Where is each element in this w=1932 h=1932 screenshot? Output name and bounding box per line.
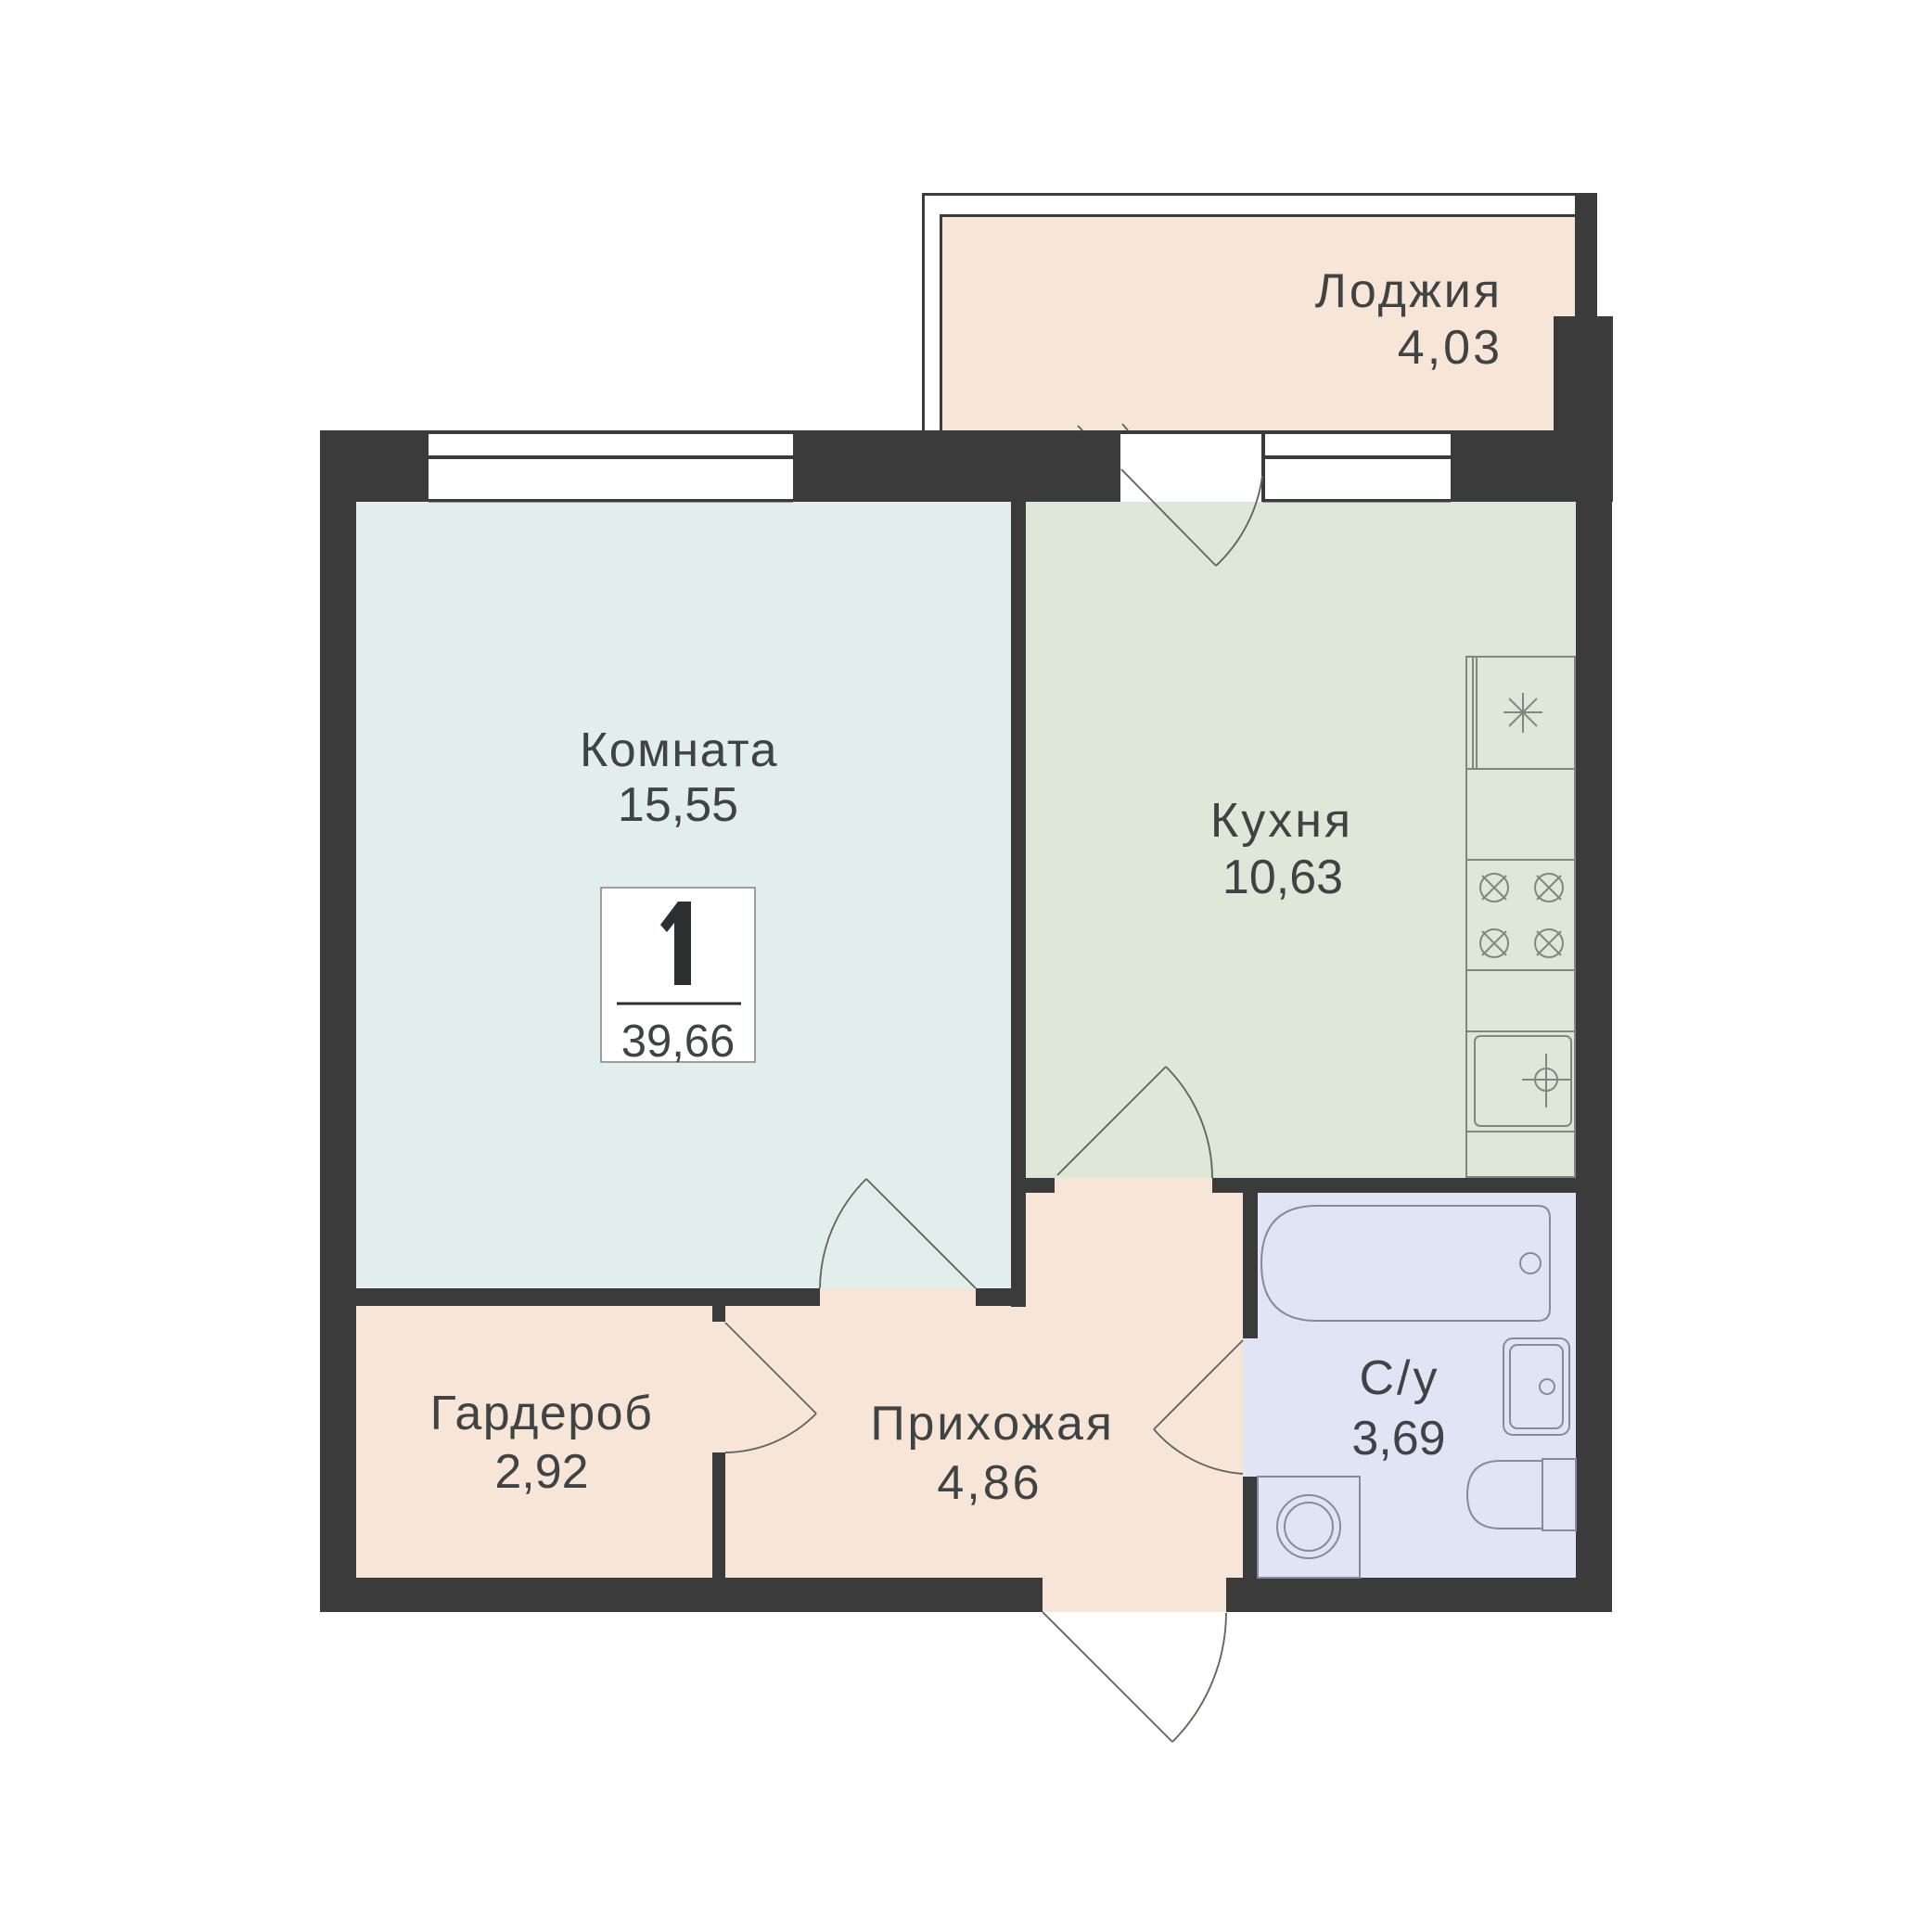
svg-text:3,69: 3,69 — [1351, 1412, 1445, 1465]
svg-text:15,55: 15,55 — [618, 778, 738, 832]
svg-text:39,66: 39,66 — [621, 1017, 736, 1067]
svg-text:4,03: 4,03 — [1398, 321, 1503, 375]
svg-text:Гардероб: Гардероб — [430, 1387, 654, 1440]
svg-text:4,86: 4,86 — [937, 1456, 1042, 1510]
svg-text:10,63: 10,63 — [1222, 851, 1343, 904]
svg-text:2,92: 2,92 — [494, 1445, 588, 1499]
svg-text:Комната: Комната — [580, 723, 778, 777]
svg-text:Прихожая: Прихожая — [870, 1397, 1114, 1451]
svg-text:Лоджия: Лоджия — [1315, 264, 1503, 318]
svg-text:Кухня: Кухня — [1210, 794, 1353, 848]
svg-text:С/у: С/у — [1360, 1351, 1440, 1405]
